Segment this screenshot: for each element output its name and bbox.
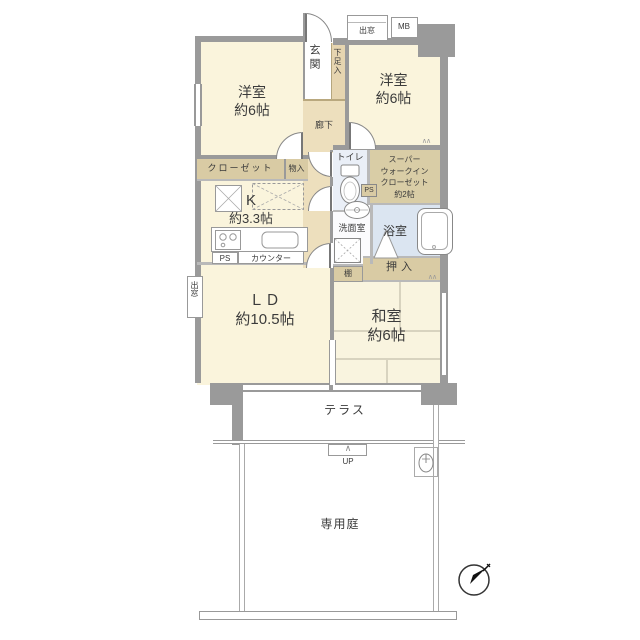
meter-box: MB xyxy=(391,17,418,38)
wall-corner-top-right xyxy=(418,24,455,57)
garden-bottom-strip xyxy=(199,611,457,620)
entrance-step-line xyxy=(303,99,345,101)
up-step-mark: ∧ xyxy=(341,444,355,453)
ld-name: ＬＤ xyxy=(205,292,325,311)
private-garden-label: 専用庭 xyxy=(290,517,390,532)
bedroom-left-name: 洋室 xyxy=(197,84,307,102)
washitsu-name: 和室 xyxy=(333,308,440,327)
wall-hall-right xyxy=(330,177,333,186)
japanese-room-label: 和室 約6帖 xyxy=(333,308,440,346)
meter-box-label: MB xyxy=(392,22,416,32)
garden-fence-left xyxy=(239,444,245,612)
bedroom-left-size: 約6帖 xyxy=(197,102,307,120)
garden-fence-right xyxy=(433,405,439,612)
floor-plan: 出窓 MB 出窓 クローゼット 物入 xyxy=(0,0,640,640)
garden-faucet-icon xyxy=(414,447,438,477)
ps-kitchen-label: PS xyxy=(213,254,237,264)
wic-line1: スーパー xyxy=(369,154,440,166)
wic-line2: ウォークイン xyxy=(369,166,440,178)
closet-label: クローゼット xyxy=(197,163,284,174)
wall-top-left xyxy=(195,36,305,42)
bathtub-drain xyxy=(432,245,436,249)
hallway-label: 廊下 xyxy=(305,120,343,131)
storage-label: 物入 xyxy=(285,164,308,174)
bedroom-right-label: 洋室 約6帖 xyxy=(347,72,440,107)
bedroom-left-label: 洋室 約6帖 xyxy=(197,84,307,119)
up-step-box: ∧ xyxy=(328,444,367,456)
washbasin-icon xyxy=(343,200,371,220)
washroom-label: 洗面室 xyxy=(332,223,372,234)
bay-window-glass-line xyxy=(348,22,386,23)
wic-line3: クローゼット xyxy=(369,177,440,189)
terrace-label: テラス xyxy=(295,403,395,418)
walk-in-closet-label: スーパー ウォークイン クローゼット 約2帖 xyxy=(369,154,440,200)
ps-box-kitchen: PS xyxy=(212,252,238,264)
wall-corner-bottom-right xyxy=(421,383,457,405)
toilet-label: トイレ xyxy=(335,152,365,163)
wall-corner-bottom-left xyxy=(210,383,243,405)
washitsu-size: 約6帖 xyxy=(333,327,440,346)
bay-window-left: 出窓 xyxy=(187,276,203,318)
kitchen-name: K xyxy=(197,192,305,211)
wall-terrace-left xyxy=(232,405,243,445)
washing-machine-icon xyxy=(334,238,361,263)
wall-kitchen-top xyxy=(197,179,308,181)
wall-wic-bottom xyxy=(367,203,440,205)
up-label: UP xyxy=(333,457,363,467)
living-dining-label: ＬＤ 約10.5帖 xyxy=(205,292,325,330)
vent-mark: ∧∧ xyxy=(423,274,441,283)
stove-icon xyxy=(215,230,241,250)
shelf-box: 棚 xyxy=(333,266,363,282)
kitchen-size: 約3.3帖 xyxy=(197,211,305,227)
bedroom-right-size: 約6帖 xyxy=(347,90,440,108)
bay-window-top: 出窓 xyxy=(347,15,388,41)
shoe-storage-label: 下足入 xyxy=(333,48,341,75)
sliding-door-ld-washitsu xyxy=(329,340,336,385)
bathroom-label: 浴室 xyxy=(376,224,414,239)
entrance-label: 玄関 xyxy=(308,44,319,72)
bedroom-right-name: 洋室 xyxy=(347,72,440,90)
bathtub-icon xyxy=(417,208,453,255)
counter-label-box: カウンター xyxy=(238,251,304,264)
ld-size: 約10.5帖 xyxy=(205,311,325,330)
bay-window-left-label: 出窓 xyxy=(190,281,198,297)
closet-band: クローゼット 物入 xyxy=(197,159,308,179)
counter-label: カウンター xyxy=(239,254,303,264)
bay-window-top-label: 出窓 xyxy=(348,26,386,36)
futon-closet-label: 押入 xyxy=(370,261,432,275)
window-japanese-room xyxy=(440,293,448,375)
kitchen-sink-icon xyxy=(261,231,299,249)
compass-icon xyxy=(454,560,494,600)
wic-size: 約2帖 xyxy=(369,189,440,201)
vent-mark: ∧∧ xyxy=(417,138,435,147)
shelf-label: 棚 xyxy=(334,269,362,279)
kitchen-label: K 約3.3帖 xyxy=(197,192,305,227)
